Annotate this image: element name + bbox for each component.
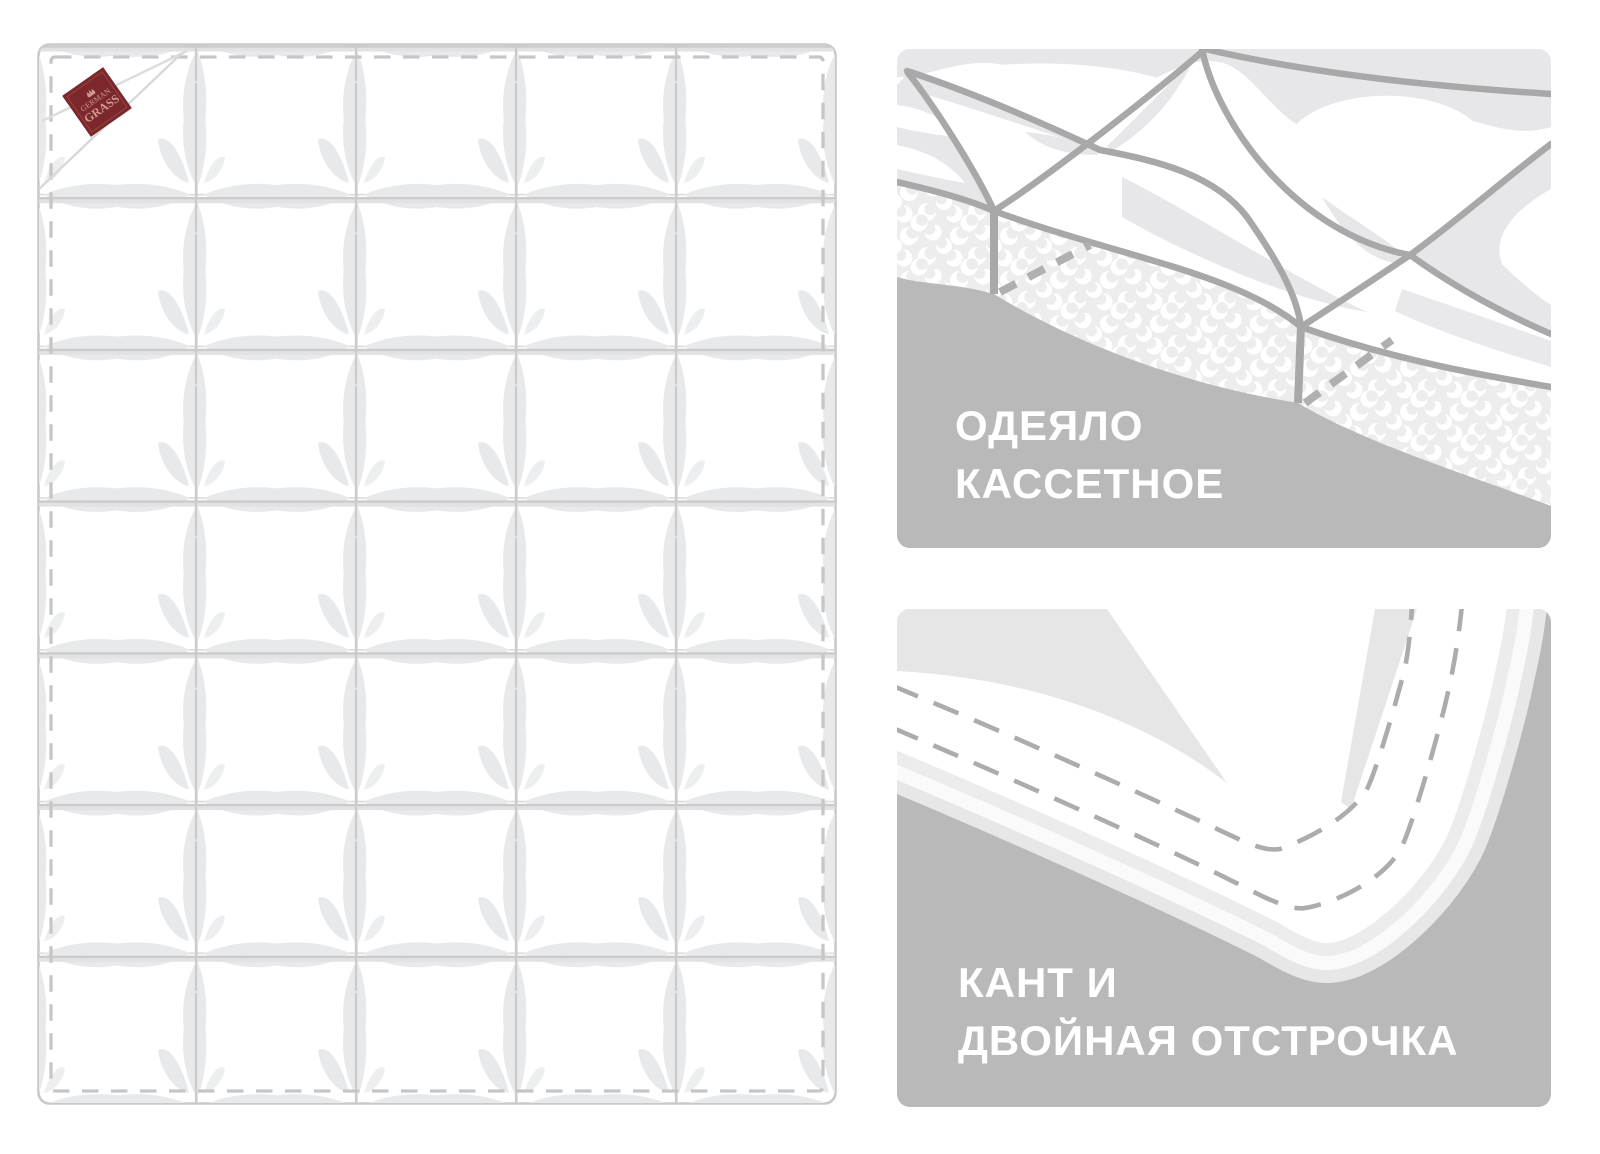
svg-text:ОДЕЯЛО: ОДЕЯЛО: [955, 402, 1143, 449]
svg-text:КАССЕТНОЕ: КАССЕТНОЕ: [955, 460, 1224, 507]
svg-text:КАНТ И: КАНТ И: [958, 959, 1118, 1006]
svg-text:ДВОЙНАЯ ОТСТРОЧКА: ДВОЙНАЯ ОТСТРОЧКА: [958, 1016, 1458, 1064]
